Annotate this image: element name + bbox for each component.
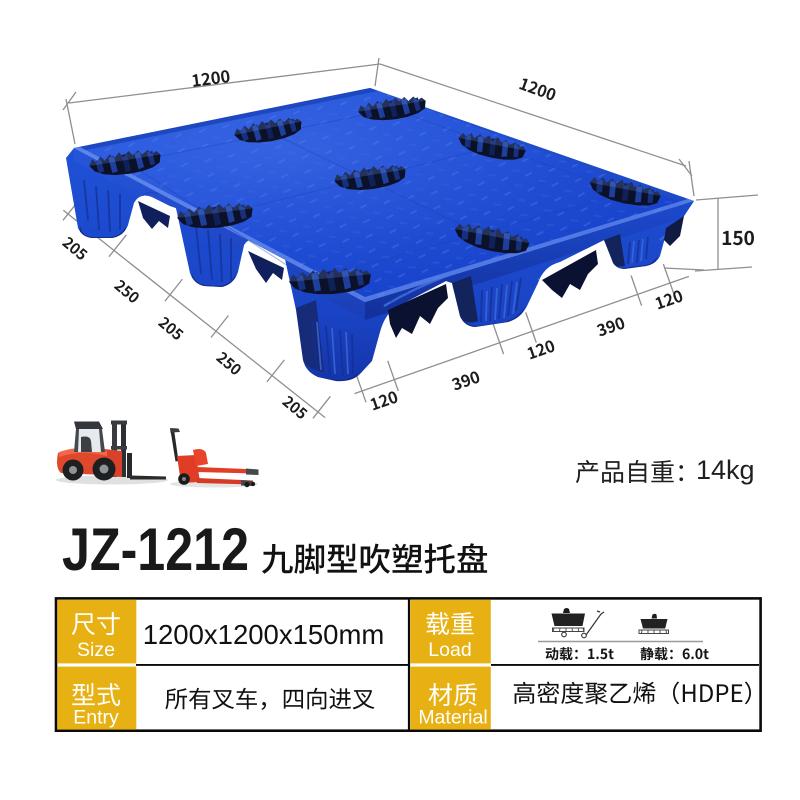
svg-text:1200x1200x150mm: 1200x1200x150mm: [143, 619, 385, 650]
svg-text:Load: Load: [428, 639, 471, 661]
svg-text:JZ-1212: JZ-1212: [62, 516, 249, 583]
svg-text:14kg: 14kg: [696, 455, 755, 485]
svg-text:Size: Size: [77, 639, 115, 661]
svg-text:Entry: Entry: [73, 707, 119, 729]
svg-text:Material: Material: [418, 707, 487, 729]
